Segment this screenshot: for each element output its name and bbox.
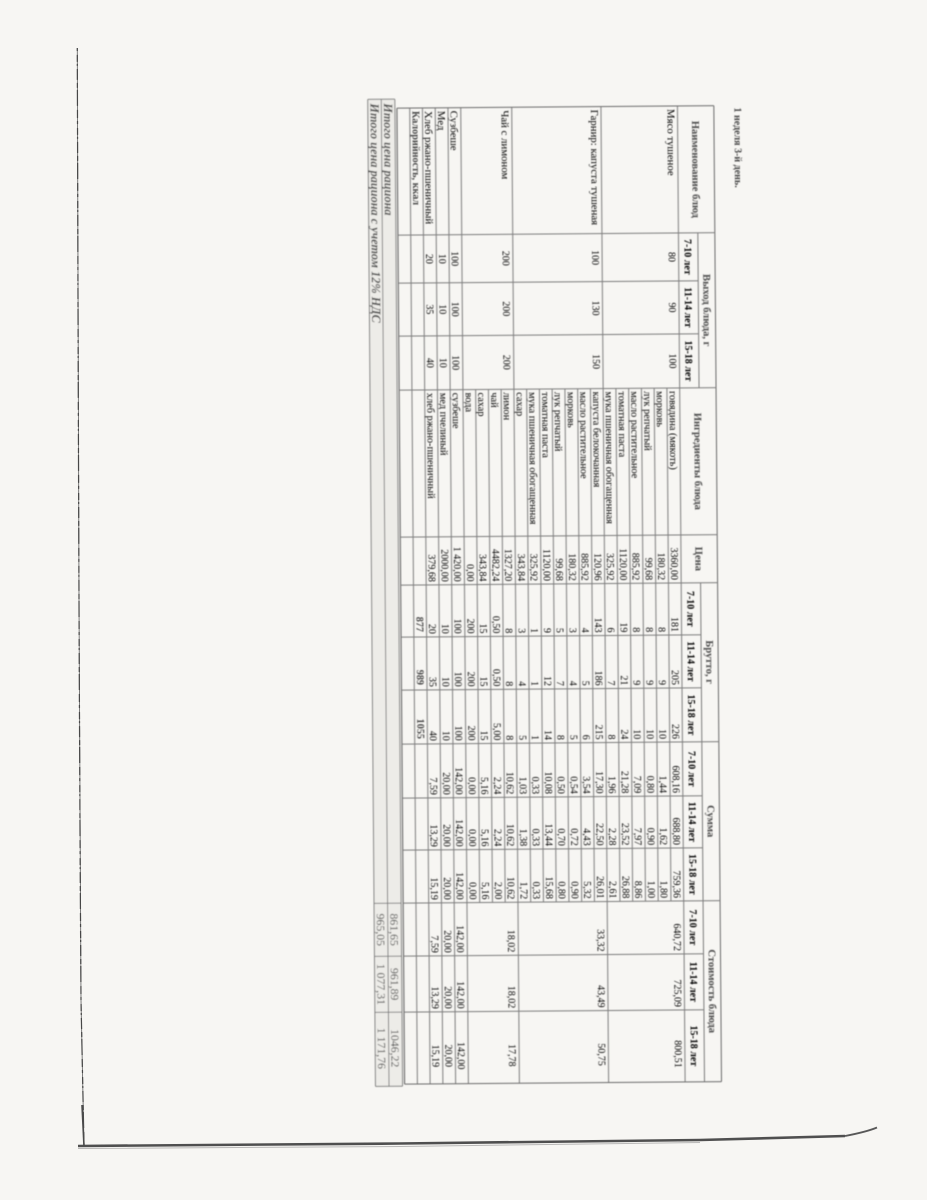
svg-text:8: 8 [554, 735, 565, 740]
svg-text:4: 4 [516, 681, 527, 686]
svg-text:Итого цена рациона с учетом 12: Итого цена рациона с учетом 12% НДС [367, 102, 383, 323]
svg-text:2,24: 2,24 [491, 829, 502, 847]
svg-text:688,80: 688,80 [670, 817, 681, 845]
svg-text:40: 40 [427, 731, 438, 741]
svg-text:877: 877 [413, 617, 424, 632]
svg-text:15,19: 15,19 [429, 1045, 440, 1068]
svg-text:1,72: 1,72 [517, 882, 528, 900]
svg-text:17,78: 17,78 [506, 1044, 517, 1067]
svg-text:100: 100 [449, 302, 460, 317]
svg-text:15,68: 15,68 [543, 876, 554, 899]
svg-text:35: 35 [427, 677, 438, 687]
svg-text:1055: 1055 [414, 719, 425, 739]
svg-text:0,90: 0,90 [644, 828, 655, 846]
svg-text:11-14 лет: 11-14 лет [686, 802, 697, 842]
svg-text:хлеб ржано-пшеничный: хлеб ржано-пшеничный [424, 393, 436, 499]
svg-text:0,90: 0,90 [568, 881, 579, 899]
svg-text:0,00: 0,00 [465, 777, 476, 795]
svg-text:5,00: 5,00 [491, 723, 502, 741]
svg-text:15-18 лет: 15-18 лет [687, 1025, 698, 1066]
svg-text:5: 5 [580, 681, 591, 686]
svg-text:180,32: 180,32 [655, 553, 666, 581]
svg-text:говядина (мякоть): говядина (мякоть) [666, 391, 678, 470]
svg-text:100: 100 [452, 726, 463, 741]
svg-text:томатная паста: томатная паста [615, 391, 627, 457]
svg-text:8: 8 [605, 734, 616, 739]
svg-text:11-14 лет: 11-14 лет [684, 641, 695, 681]
svg-text:325,92: 325,92 [604, 553, 615, 581]
svg-text:17,30: 17,30 [593, 771, 604, 794]
svg-text:1 420,00: 1 420,00 [451, 547, 462, 582]
svg-text:сахар: сахар [475, 392, 486, 416]
svg-text:20,00: 20,00 [440, 772, 451, 795]
svg-text:7-10 лет: 7-10 лет [681, 239, 692, 275]
svg-text:Наименование блюд: Наименование блюд [689, 121, 701, 219]
svg-text:Сузбеше: Сузбеше [448, 111, 460, 151]
svg-text:200: 200 [465, 672, 476, 687]
svg-text:Мясо тушеное: Мясо тушеное [664, 109, 677, 176]
svg-text:1327,20: 1327,20 [502, 549, 513, 582]
svg-text:15: 15 [477, 676, 488, 686]
svg-text:26,88: 26,88 [619, 876, 630, 899]
svg-text:капуста белокочанная: капуста белокочанная [590, 392, 602, 488]
svg-text:15-18 лет: 15-18 лет [686, 854, 697, 895]
svg-text:0,72: 0,72 [568, 828, 579, 846]
svg-text:10: 10 [436, 304, 447, 314]
svg-text:1: 1 [528, 628, 539, 633]
svg-text:15-18 лет: 15-18 лет [682, 340, 693, 381]
svg-text:100: 100 [452, 619, 463, 634]
svg-text:вода: вода [462, 393, 473, 413]
svg-text:181: 181 [668, 617, 679, 632]
svg-text:20,00: 20,00 [442, 1045, 453, 1068]
svg-text:1046,22: 1046,22 [388, 1029, 402, 1068]
svg-text:9: 9 [656, 680, 667, 685]
svg-text:800,51: 800,51 [672, 1040, 683, 1068]
svg-text:24: 24 [618, 729, 629, 739]
svg-text:20,00: 20,00 [441, 877, 452, 900]
svg-text:150: 150 [590, 354, 601, 369]
svg-text:6: 6 [580, 735, 591, 740]
svg-text:640,72: 640,72 [671, 923, 682, 951]
svg-text:15-18 лет: 15-18 лет [685, 694, 696, 735]
svg-text:325,92: 325,92 [528, 554, 539, 582]
svg-text:200: 200 [500, 301, 511, 316]
svg-text:14: 14 [542, 730, 553, 740]
svg-text:99,68: 99,68 [553, 558, 564, 581]
svg-text:215: 215 [593, 725, 604, 740]
svg-text:масло растительное: масло растительное [577, 392, 589, 480]
svg-text:3: 3 [515, 628, 526, 633]
svg-text:Сумма: Сумма [704, 805, 715, 838]
svg-text:1 077,31: 1 077,31 [374, 964, 388, 1005]
svg-text:40: 40 [424, 358, 435, 368]
svg-text:5,16: 5,16 [479, 882, 490, 900]
svg-text:0,50: 0,50 [490, 616, 501, 634]
svg-text:11-14 лет: 11-14 лет [687, 962, 698, 1002]
svg-text:33,32: 33,32 [594, 929, 605, 952]
svg-text:5,16: 5,16 [479, 829, 490, 847]
svg-text:10,62: 10,62 [504, 772, 515, 795]
svg-text:142,00: 142,00 [453, 819, 464, 847]
svg-text:масло растительное: масло растительное [628, 391, 640, 479]
svg-text:8: 8 [630, 627, 641, 632]
svg-text:8: 8 [656, 627, 667, 632]
svg-text:Ингредиенты блюда: Ингредиенты блюда [691, 413, 703, 511]
svg-text:1120,00: 1120,00 [617, 548, 628, 580]
svg-text:4,43: 4,43 [581, 828, 592, 846]
svg-text:Калорийность, ккал: Калорийность, ккал [409, 111, 421, 205]
svg-text:0,54: 0,54 [567, 776, 578, 794]
svg-text:186: 186 [592, 671, 603, 686]
svg-text:2,24: 2,24 [491, 777, 502, 795]
svg-text:1,38: 1,38 [517, 829, 528, 847]
svg-text:26,01: 26,01 [594, 876, 605, 899]
svg-text:Брутто, г: Брутто, г [703, 640, 714, 684]
svg-text:10,62: 10,62 [504, 824, 515, 847]
svg-text:200: 200 [500, 355, 511, 370]
svg-text:1,44: 1,44 [657, 776, 668, 794]
svg-text:8: 8 [643, 627, 654, 632]
svg-text:100: 100 [452, 672, 463, 687]
svg-text:5,32: 5,32 [581, 881, 592, 899]
svg-text:961,89: 961,89 [388, 968, 402, 1001]
svg-text:142,00: 142,00 [454, 925, 465, 953]
svg-text:142,00: 142,00 [454, 872, 465, 900]
svg-text:7,59: 7,59 [427, 777, 438, 795]
svg-text:180,32: 180,32 [566, 553, 577, 581]
svg-text:0,70: 0,70 [555, 828, 566, 846]
svg-text:21: 21 [618, 675, 629, 685]
svg-text:12: 12 [541, 676, 552, 686]
svg-text:885,92: 885,92 [630, 553, 641, 581]
svg-text:35: 35 [424, 304, 435, 314]
svg-text:965,05: 965,05 [374, 914, 388, 947]
svg-text:80: 80 [665, 252, 676, 262]
svg-text:43,49: 43,49 [595, 985, 606, 1008]
svg-text:лимон: лимон [501, 392, 512, 420]
svg-text:чай: чай [488, 392, 499, 408]
svg-text:20: 20 [423, 254, 434, 264]
svg-text:0,80: 0,80 [556, 881, 567, 899]
svg-text:5,16: 5,16 [478, 777, 489, 795]
svg-text:1 неделя 3-й день.: 1 неделя 3-й день. [731, 107, 743, 188]
svg-text:0,33: 0,33 [529, 777, 540, 795]
svg-text:0,33: 0,33 [530, 882, 541, 900]
svg-text:759,36: 759,36 [670, 870, 681, 898]
svg-text:120,96: 120,96 [591, 553, 602, 581]
svg-text:20,00: 20,00 [441, 930, 452, 953]
svg-text:Чай с лимоном: Чай с лимоном [499, 110, 512, 179]
svg-text:861,65: 861,65 [387, 913, 401, 946]
svg-text:8: 8 [503, 735, 514, 740]
svg-text:8: 8 [503, 628, 514, 633]
svg-text:0,80: 0,80 [644, 776, 655, 794]
svg-text:5: 5 [554, 628, 565, 633]
svg-text:10: 10 [439, 677, 450, 687]
svg-text:10: 10 [644, 729, 655, 739]
svg-text:11-14 лет: 11-14 лет [682, 287, 693, 327]
svg-text:0,50: 0,50 [555, 776, 566, 794]
svg-text:205: 205 [669, 670, 680, 685]
svg-text:Выход блюда, г: Выход блюда, г [700, 274, 712, 347]
svg-text:885,92: 885,92 [579, 553, 590, 581]
svg-text:8: 8 [503, 681, 514, 686]
svg-text:4482,24: 4482,24 [489, 549, 500, 582]
svg-text:5: 5 [516, 735, 527, 740]
svg-text:10,62: 10,62 [505, 877, 516, 900]
svg-text:лук репчатый: лук репчатый [552, 392, 563, 452]
svg-text:7,09: 7,09 [631, 776, 642, 794]
svg-text:23,52: 23,52 [619, 823, 630, 846]
svg-text:1: 1 [529, 681, 540, 686]
svg-text:сузбеше: сузбеше [450, 393, 461, 429]
svg-text:15,19: 15,19 [428, 877, 439, 900]
svg-text:2,28: 2,28 [606, 828, 617, 846]
svg-text:3,54: 3,54 [580, 776, 591, 794]
svg-text:0,33: 0,33 [530, 829, 541, 847]
svg-text:мука пшеничная обогащенная: мука пшеничная обогащенная [603, 391, 615, 524]
svg-text:200: 200 [464, 619, 475, 634]
svg-text:1,62: 1,62 [657, 828, 668, 846]
svg-text:3360,00: 3360,00 [668, 547, 679, 580]
svg-text:лук репчатый: лук репчатый [641, 391, 652, 451]
svg-text:4: 4 [579, 628, 590, 633]
svg-text:9: 9 [541, 628, 552, 633]
svg-text:6: 6 [605, 627, 616, 632]
svg-text:21,28: 21,28 [618, 771, 629, 794]
svg-text:379,68: 379,68 [426, 554, 437, 582]
svg-text:10: 10 [440, 731, 451, 741]
svg-text:0,50: 0,50 [490, 669, 501, 687]
svg-text:7: 7 [554, 681, 565, 686]
svg-text:10: 10 [631, 729, 642, 739]
svg-text:608,16: 608,16 [669, 765, 680, 793]
svg-text:Мед: Мед [435, 111, 447, 131]
svg-text:томатная паста: томатная паста [539, 392, 551, 458]
svg-text:100: 100 [589, 250, 600, 265]
svg-text:100: 100 [666, 353, 677, 368]
svg-text:5: 5 [567, 735, 578, 740]
svg-text:1,96: 1,96 [606, 776, 617, 794]
svg-text:20,00: 20,00 [440, 824, 451, 847]
svg-text:1: 1 [529, 735, 540, 740]
svg-text:226: 226 [669, 724, 680, 739]
svg-text:7,59: 7,59 [429, 935, 440, 953]
svg-text:13,29: 13,29 [428, 824, 439, 847]
svg-text:7: 7 [605, 680, 616, 685]
svg-text:10: 10 [437, 358, 448, 368]
svg-text:19: 19 [617, 622, 628, 632]
svg-text:90: 90 [666, 302, 677, 312]
svg-text:1 171,76: 1 171,76 [375, 1028, 389, 1069]
svg-text:мука пшеничная обогащенная: мука пшеничная обогащенная [526, 392, 538, 525]
svg-text:343,84: 343,84 [477, 554, 488, 582]
svg-text:Хлеб ржано-пшеничный: Хлеб ржано-пшеничный [422, 111, 435, 225]
svg-text:9: 9 [631, 680, 642, 685]
svg-text:2,61: 2,61 [607, 881, 618, 899]
svg-text:10: 10 [656, 729, 667, 739]
svg-text:4: 4 [567, 681, 578, 686]
svg-text:13,44: 13,44 [542, 823, 553, 846]
svg-text:100: 100 [449, 251, 460, 266]
svg-text:13,29: 13,29 [429, 986, 440, 1009]
svg-text:50,75: 50,75 [595, 1043, 606, 1066]
svg-text:343,84: 343,84 [515, 554, 526, 582]
svg-text:7-10 лет: 7-10 лет [684, 591, 695, 627]
svg-text:0,00: 0,00 [466, 882, 477, 900]
svg-text:20: 20 [426, 624, 437, 634]
svg-text:22,50: 22,50 [593, 823, 604, 846]
svg-text:7-10 лет: 7-10 лет [686, 909, 697, 945]
svg-text:142,00: 142,00 [455, 1042, 466, 1070]
svg-text:сахар: сахар [513, 392, 524, 416]
svg-text:9: 9 [643, 680, 654, 685]
svg-text:10: 10 [436, 254, 447, 264]
svg-text:18,02: 18,02 [505, 986, 516, 1009]
svg-text:морковь: морковь [654, 391, 665, 427]
svg-text:10,08: 10,08 [542, 771, 553, 794]
svg-text:200: 200 [500, 251, 511, 266]
svg-text:142,00: 142,00 [454, 981, 465, 1009]
svg-text:10: 10 [439, 624, 450, 634]
svg-text:7,97: 7,97 [632, 828, 643, 846]
svg-text:15: 15 [477, 623, 488, 633]
svg-text:130: 130 [589, 301, 600, 316]
svg-text:18,02: 18,02 [505, 930, 516, 953]
svg-text:143: 143 [592, 618, 603, 633]
svg-text:20,00: 20,00 [442, 986, 453, 1009]
svg-text:200: 200 [465, 726, 476, 741]
svg-text:2000,00: 2000,00 [438, 549, 449, 582]
svg-text:725,09: 725,09 [671, 979, 682, 1007]
svg-text:1,80: 1,80 [658, 881, 669, 899]
svg-text:1120,00: 1120,00 [540, 549, 551, 581]
svg-text:Стоимость блюда: Стоимость блюда [705, 949, 717, 1033]
svg-text:989: 989 [414, 670, 425, 685]
svg-text:7-10 лет: 7-10 лет [685, 751, 696, 787]
svg-text:морковь: морковь [564, 392, 575, 428]
svg-text:Гарнир: капуста тушеная: Гарнир: капуста тушеная [588, 110, 601, 226]
svg-text:15: 15 [478, 730, 489, 740]
svg-text:100: 100 [449, 355, 460, 370]
svg-text:1,03: 1,03 [516, 777, 527, 795]
svg-text:2,00: 2,00 [492, 882, 503, 900]
svg-text:1,00: 1,00 [645, 881, 656, 899]
svg-text:3: 3 [566, 628, 577, 633]
svg-text:0,00: 0,00 [466, 829, 477, 847]
svg-text:мед пчелиный: мед пчелиный [437, 393, 448, 456]
svg-text:8,86: 8,86 [632, 881, 643, 899]
svg-text:99,68: 99,68 [642, 558, 653, 581]
svg-text:0,00: 0,00 [464, 564, 475, 582]
svg-text:142,00: 142,00 [453, 767, 464, 795]
svg-text:Цена: Цена [692, 547, 703, 572]
